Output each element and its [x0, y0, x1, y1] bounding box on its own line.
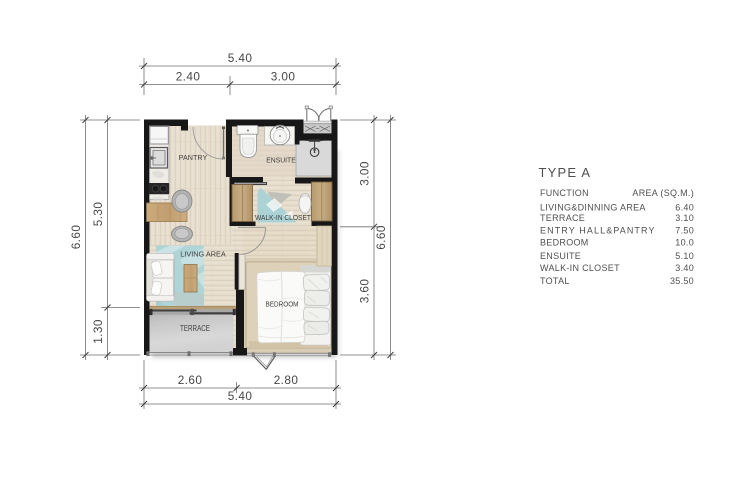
- svg-text:2.80: 2.80: [274, 373, 299, 387]
- svg-text:10.0: 10.0: [675, 238, 694, 248]
- svg-text:PANTRY: PANTRY: [179, 153, 208, 162]
- svg-text:ENSUITE: ENSUITE: [266, 156, 296, 165]
- svg-text:2.60: 2.60: [178, 373, 203, 387]
- svg-text:6.60: 6.60: [374, 225, 388, 250]
- svg-text:5.40: 5.40: [228, 51, 253, 65]
- svg-text:3.60: 3.60: [358, 279, 372, 304]
- svg-text:5.40: 5.40: [228, 389, 253, 403]
- svg-text:TERRACE: TERRACE: [180, 324, 210, 333]
- svg-text:6.40: 6.40: [675, 203, 694, 213]
- svg-text:3.10: 3.10: [675, 213, 694, 223]
- svg-text:1.30: 1.30: [91, 319, 105, 344]
- svg-text:3.40: 3.40: [675, 263, 694, 273]
- svg-text:BEDROOM: BEDROOM: [266, 300, 299, 309]
- svg-text:TOTAL: TOTAL: [540, 276, 570, 286]
- svg-text:LIVING AREA: LIVING AREA: [180, 250, 226, 259]
- svg-text:2.40: 2.40: [176, 70, 201, 84]
- svg-text:TERRACE: TERRACE: [540, 213, 585, 223]
- svg-text:6.60: 6.60: [69, 225, 83, 250]
- svg-text:5.30: 5.30: [91, 202, 105, 227]
- svg-text:3.00: 3.00: [358, 161, 372, 186]
- svg-text:AREA (SQ.M.): AREA (SQ.M.): [632, 188, 694, 198]
- svg-text:WALK-IN CLOSET: WALK-IN CLOSET: [255, 213, 312, 222]
- svg-text:TYPE A: TYPE A: [539, 165, 592, 180]
- svg-text:FUNCTION: FUNCTION: [540, 188, 589, 198]
- svg-text:35.50: 35.50: [670, 276, 694, 286]
- svg-text:5.10: 5.10: [675, 251, 694, 261]
- svg-text:7.50: 7.50: [675, 226, 694, 236]
- svg-text:WALK-IN CLOSET: WALK-IN CLOSET: [540, 263, 620, 273]
- svg-text:BEDROOM: BEDROOM: [540, 238, 589, 248]
- svg-text:LIVING&DINNING AREA: LIVING&DINNING AREA: [540, 203, 646, 213]
- svg-text:ENTRY HALL&PANTRY: ENTRY HALL&PANTRY: [540, 226, 656, 236]
- svg-text:3.00: 3.00: [271, 70, 296, 84]
- svg-text:ENSUITE: ENSUITE: [540, 251, 581, 261]
